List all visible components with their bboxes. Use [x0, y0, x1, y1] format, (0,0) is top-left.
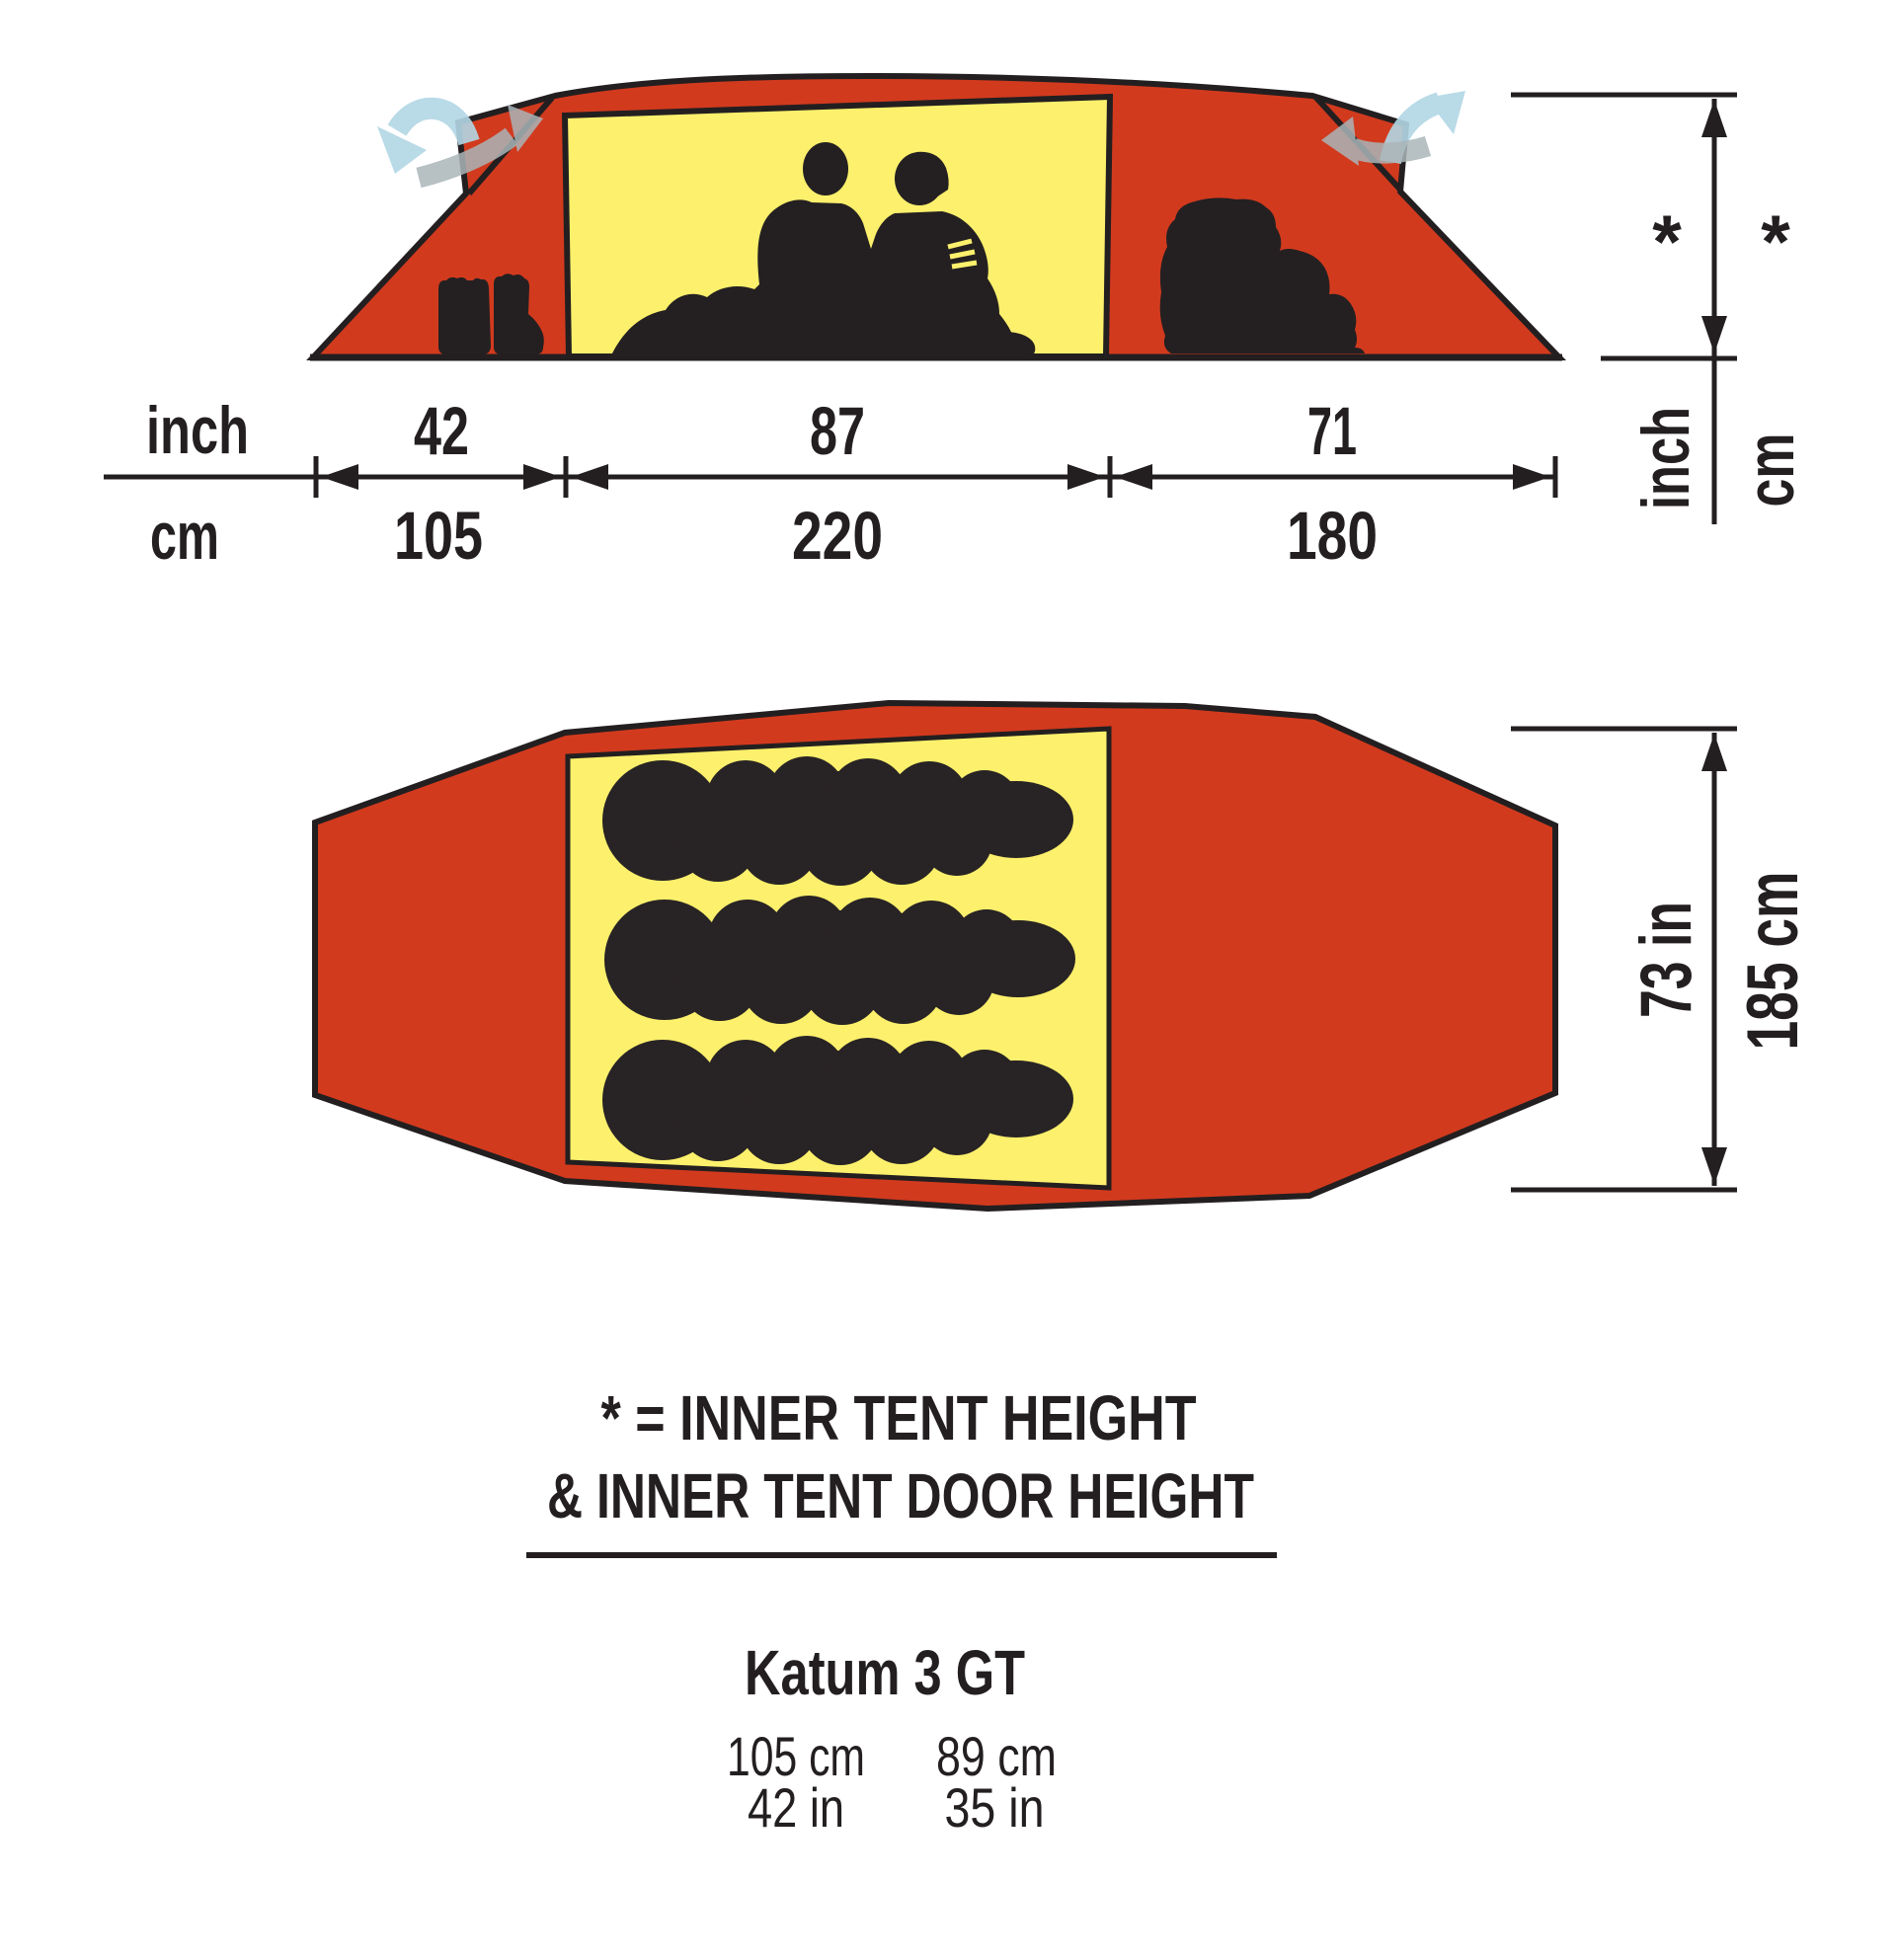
svg-text:35 in: 35 in [945, 1776, 1045, 1839]
svg-text:42 in: 42 in [748, 1776, 844, 1839]
svg-text:42: 42 [414, 393, 469, 469]
svg-text:71: 71 [1307, 393, 1357, 469]
svg-text:185 cm: 185 cm [1733, 872, 1813, 1051]
svg-text:inch: inch [1628, 407, 1703, 510]
svg-text:& INNER TENT DOOR HEIGHT: & INNER TENT DOOR HEIGHT [547, 1460, 1254, 1531]
svg-text:inch: inch [146, 393, 249, 468]
svg-text:180: 180 [1287, 498, 1378, 574]
svg-text:73 in: 73 in [1626, 902, 1706, 1018]
svg-text:*: * [1652, 200, 1682, 284]
svg-text:87: 87 [810, 393, 865, 469]
svg-text:*: * [1761, 200, 1790, 284]
svg-text:cm: cm [1733, 433, 1808, 508]
svg-text:220: 220 [792, 498, 883, 574]
svg-text:cm: cm [150, 499, 219, 574]
svg-text:Katum 3 GT: Katum 3 GT [745, 1637, 1025, 1708]
svg-text:105: 105 [394, 498, 483, 574]
svg-text:* = INNER TENT HEIGHT: * = INNER TENT HEIGHT [601, 1382, 1197, 1453]
